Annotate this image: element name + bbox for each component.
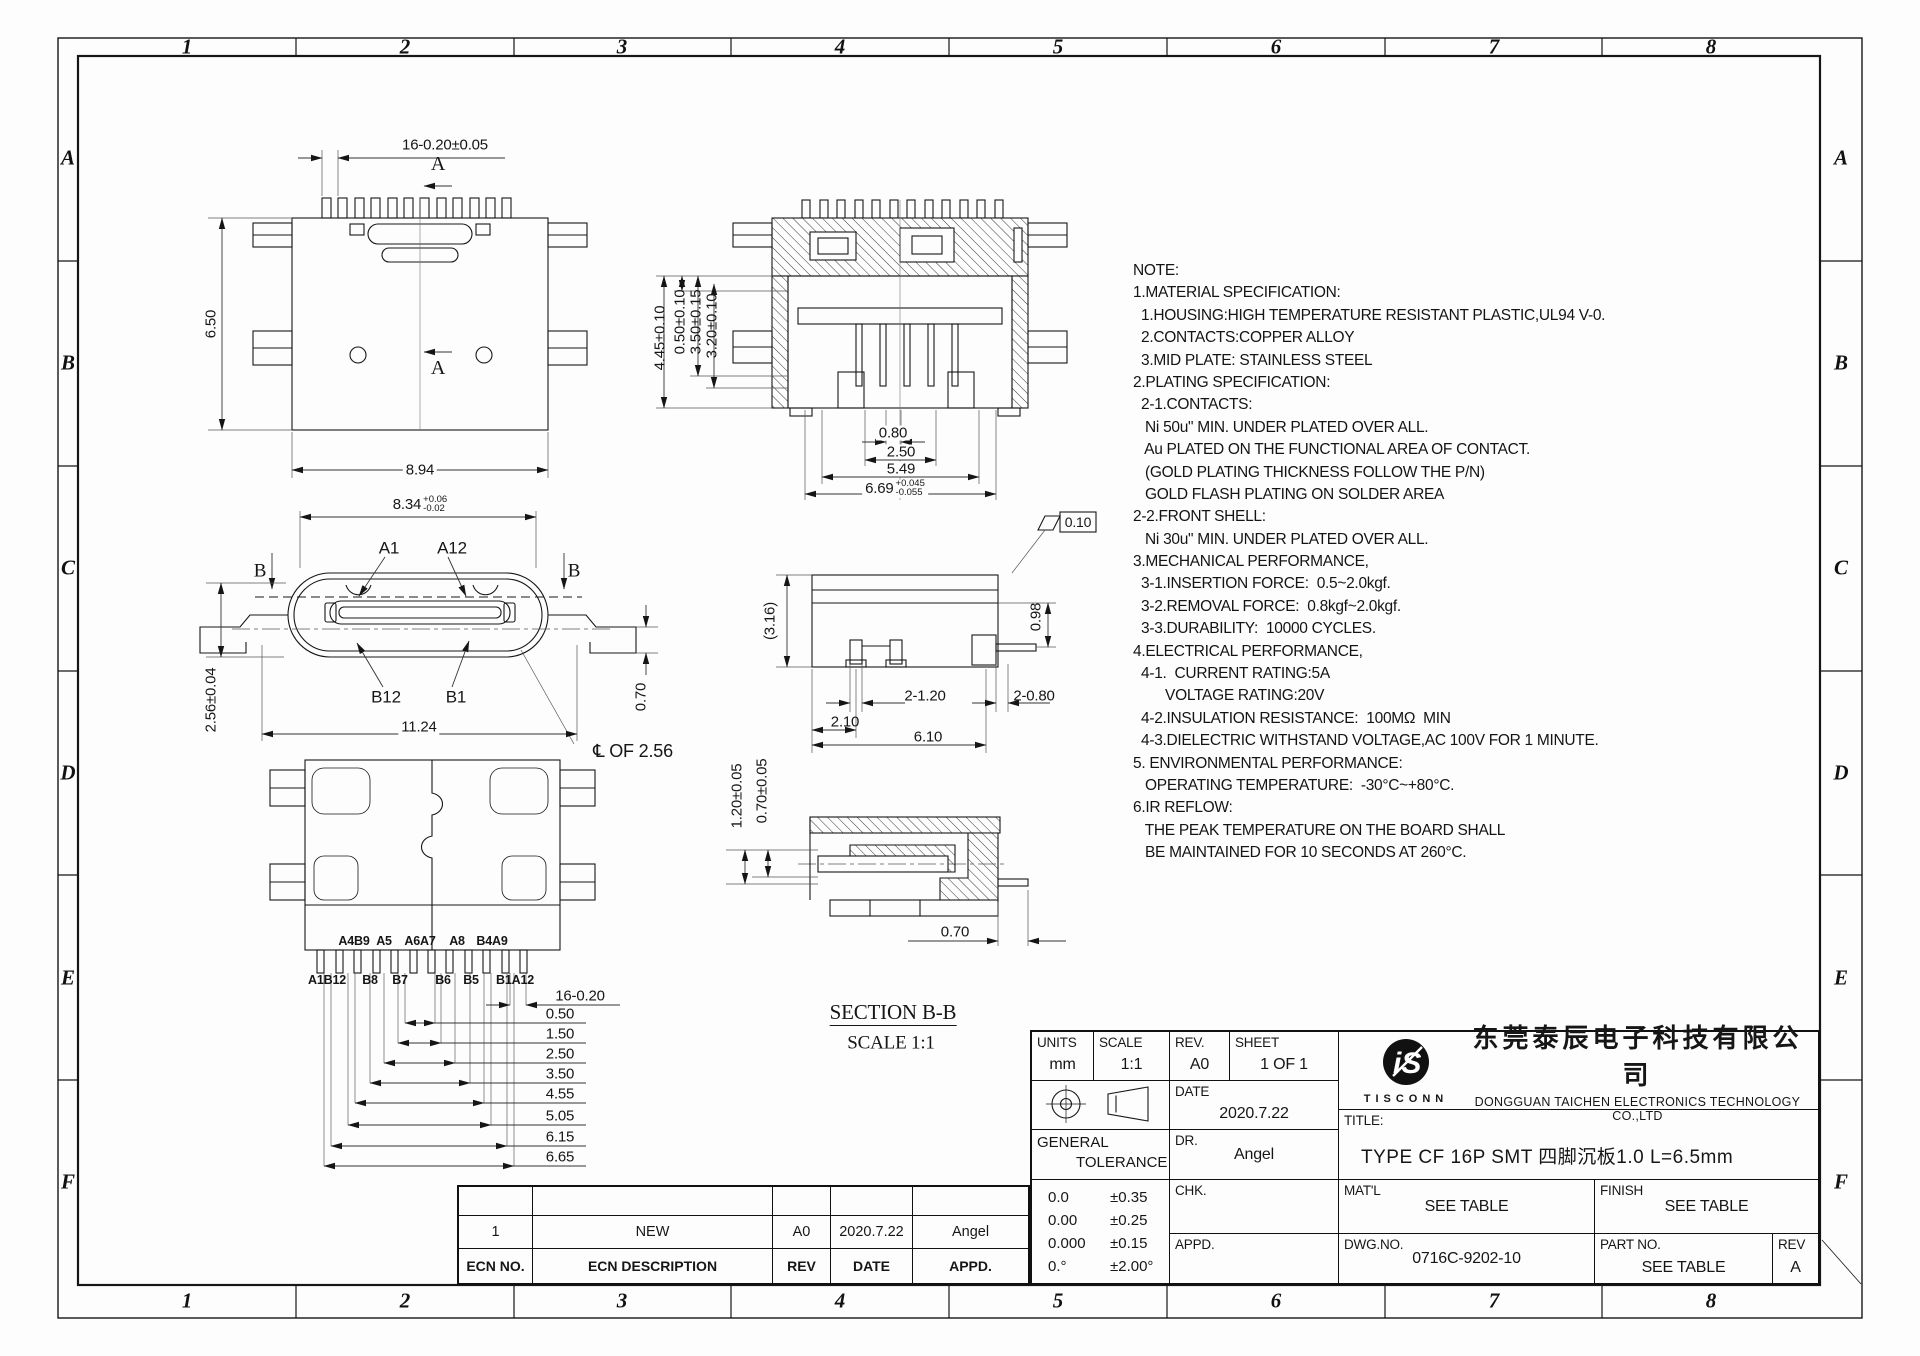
section-a-label-top: A: [431, 154, 445, 174]
units-value: mm: [1032, 1032, 1093, 1080]
dwg-no-value: 0716C-9202-10: [1339, 1234, 1594, 1283]
dim: 5.49: [884, 462, 918, 477]
title-label: TITLE:: [1344, 1113, 1383, 1128]
dim: 0.80: [876, 426, 910, 441]
ecn-header-date: DATE: [831, 1249, 913, 1283]
dim: 6.15: [546, 1130, 574, 1145]
note-line: GOLD FLASH PLATING ON SOLDER AREA: [1133, 486, 1613, 508]
zone-label: B: [61, 351, 75, 376]
dim-body-width: 8.94: [403, 463, 437, 478]
notes-block: NOTE:1.MATERIAL SPECIFICATION: 1.HOUSING…: [1133, 262, 1613, 867]
zone-label: C: [1834, 556, 1848, 581]
ecn-header-description: ECN DESCRIPTION: [533, 1249, 773, 1283]
ecn-cell: [913, 1187, 1028, 1216]
ecn-header-rev: REV: [773, 1249, 831, 1283]
zone-label: 3: [617, 35, 628, 60]
dim-body-height: 6.50: [204, 310, 219, 338]
pin-label: B1A12: [496, 974, 534, 987]
view-section-bb: [726, 817, 1066, 946]
tol-range: 0.000: [1048, 1232, 1110, 1255]
appd-value: [1170, 1234, 1338, 1283]
zone-label: 3: [617, 1289, 628, 1314]
tisconn-logo-icon: iS: [1381, 1037, 1431, 1087]
dim: 6.69+0.045-0.055: [862, 480, 928, 498]
date-value: 2020.7.22: [1170, 1081, 1338, 1129]
dim: 0.98: [1029, 603, 1044, 631]
zone-label: B: [1834, 351, 1848, 376]
note-line: 4-3.DIELECTRIC WITHSTAND VOLTAGE,AC 100V…: [1133, 732, 1613, 754]
pin-label: A6A7: [404, 935, 435, 948]
ecn-no: 1: [459, 1216, 533, 1249]
pin-label: A8: [449, 935, 465, 948]
note-line: THE PEAK TEMPERATURE ON THE BOARD SHALL: [1133, 822, 1613, 844]
part-no-value: SEE TABLE: [1595, 1234, 1772, 1283]
note-line: 6.IR REFLOW:: [1133, 799, 1613, 821]
scale-value: 1:1: [1094, 1032, 1169, 1080]
rev-value: A0: [1170, 1032, 1229, 1080]
ecn-cell: [459, 1187, 533, 1216]
general-tolerance-cell: GENERAL TOLERANCE: [1032, 1130, 1170, 1180]
dim: 6.10: [914, 730, 942, 745]
pin-label: A5: [376, 935, 392, 948]
note-line: 3-2.REMOVAL FORCE: 0.8kgf~2.0kgf.: [1133, 598, 1613, 620]
ecn-description: NEW: [533, 1216, 773, 1249]
section-b-label-right: B: [568, 562, 580, 581]
matl-value: SEE TABLE: [1339, 1180, 1594, 1233]
zone-label: A: [1834, 146, 1848, 171]
view-mating-face: [200, 511, 658, 744]
zone-label: 1: [182, 35, 193, 60]
zone-label: 7: [1489, 35, 1500, 60]
zone-label: 2: [400, 1289, 411, 1314]
flatness-tolerance: 0.10: [1065, 515, 1091, 529]
tolerance-row: 0.°±2.00°: [1032, 1255, 1169, 1278]
pin-label: A4B9: [338, 935, 369, 948]
dim: (3.16): [763, 602, 778, 640]
drawing-sheet: 16-0.20±0.05AA6.508.944.45±0.100.50±0.10…: [0, 0, 1920, 1356]
dim: 2-0.80: [1013, 689, 1054, 704]
tolerance-label: TOLERANCE: [1076, 1154, 1167, 1171]
tolerance-row: 0.0±0.35: [1032, 1186, 1169, 1209]
note-line: Ni 50u" MIN. UNDER PLATED OVER ALL.: [1133, 419, 1613, 441]
zone-label: 5: [1053, 35, 1064, 60]
zone-label: 6: [1271, 35, 1282, 60]
pin-label: B7: [392, 974, 408, 987]
title-cell: TITLE: TYPE CF 16P SMT 四脚沉板1.0 L=6.5mm: [1339, 1110, 1818, 1180]
company-cell: iS TISCONN 东莞泰辰电子科技有限公司 DONGGUAN TAICHEN…: [1339, 1032, 1818, 1110]
ecn-table: 1 NEW A0 2020.7.22 Angel ECN NO. ECN DES…: [457, 1185, 1030, 1285]
note-line: NOTE:: [1133, 262, 1613, 284]
zone-label: 2: [400, 35, 411, 60]
note-line: 2.CONTACTS:COPPER ALLOY: [1133, 329, 1613, 351]
projection-cell: [1032, 1081, 1170, 1130]
dr-value: Angel: [1170, 1130, 1338, 1179]
note-line: (GOLD PLATING THICKNESS FOLLOW THE P/N): [1133, 464, 1613, 486]
zone-label: F: [1834, 1170, 1848, 1195]
dim: 4.55: [546, 1087, 574, 1102]
dim-shell-height: 4.45±0.10: [653, 306, 668, 371]
dim: 5.05: [546, 1109, 574, 1124]
ecn-cell: [533, 1187, 773, 1216]
part-no-cell: PART NO. SEE TABLE: [1595, 1234, 1773, 1283]
pin-callout-a1: A1: [379, 540, 399, 557]
rev2-cell: REV A: [1773, 1234, 1818, 1283]
tol-value: ±0.25: [1110, 1209, 1147, 1232]
rev2-value: A: [1773, 1234, 1818, 1283]
zone-label: 5: [1053, 1289, 1064, 1314]
chk-cell: CHK.: [1170, 1180, 1339, 1234]
zone-label: C: [61, 556, 75, 581]
zone-label: 4: [835, 1289, 846, 1314]
view-top-plan: [208, 150, 587, 478]
zone-label: 6: [1271, 1289, 1282, 1314]
finish-cell: FINISH SEE TABLE: [1595, 1180, 1818, 1234]
pin-label: B4A9: [476, 935, 507, 948]
dim-tongue-width: 8.34+0.06-0.02: [390, 496, 450, 514]
note-line: Au PLATED ON THE FUNCTIONAL AREA OF CONT…: [1133, 441, 1613, 463]
section-scale: SCALE 1:1: [847, 1034, 934, 1053]
dim: 3.50: [546, 1067, 574, 1082]
dim: 2.50: [884, 445, 918, 460]
tol-value: ±0.15: [1110, 1232, 1147, 1255]
ecn-cell: [831, 1187, 913, 1216]
zone-label: D: [60, 761, 75, 786]
title-block: UNITS mm SCALE 1:1 REV. A0 SHEET 1 OF 1 …: [1030, 1030, 1820, 1285]
dim: 0.70: [941, 925, 969, 940]
note-line: 4.ELECTRICAL PERFORMANCE,: [1133, 643, 1613, 665]
tolerance-row: 0.00±0.25: [1032, 1209, 1169, 1232]
zone-label: E: [61, 966, 75, 991]
note-line: Ni 30u" MIN. UNDER PLATED OVER ALL.: [1133, 531, 1613, 553]
dr-cell: DR. Angel: [1170, 1130, 1339, 1180]
zone-label: A: [61, 146, 75, 171]
dim: 11.24: [398, 720, 439, 735]
ecn-appd: Angel: [913, 1216, 1028, 1249]
dim: 1.20±0.05: [730, 764, 745, 829]
zone-label: 7: [1489, 1289, 1500, 1314]
section-a-label-bottom: A: [431, 358, 445, 378]
pin-label: B5: [463, 974, 479, 987]
dim: 3.50±0.15: [689, 290, 704, 355]
sheet-cell: SHEET 1 OF 1: [1230, 1032, 1339, 1081]
dwg-no-cell: DWG.NO. 0716C-9202-10: [1339, 1234, 1595, 1283]
note-line: 5. ENVIRONMENTAL PERFORMANCE:: [1133, 755, 1613, 777]
ecn-cell: [773, 1187, 831, 1216]
dim: 0.70: [634, 683, 649, 711]
tol-range: 0.00: [1048, 1209, 1110, 1232]
ecn-header-appd: APPD.: [913, 1249, 1028, 1283]
dim: 2.10: [831, 715, 859, 730]
tolerance-table: 0.0±0.35 0.00±0.25 0.000±0.15 0.°±2.00°: [1032, 1180, 1170, 1283]
logo-text: TISCONN: [1347, 1093, 1465, 1105]
dim: 2-1.20: [904, 689, 945, 704]
pin-callout-a12: A12: [437, 540, 467, 557]
tol-range: 0.°: [1048, 1255, 1110, 1278]
view-bottom: [270, 760, 620, 1166]
pin-label: A1B12: [308, 974, 346, 987]
pin-callout-b1: B1: [446, 689, 466, 706]
section-title: SECTION B-B: [830, 1002, 957, 1026]
view-side: [776, 512, 1096, 753]
tol-value: ±0.35: [1110, 1186, 1147, 1209]
zone-label: 4: [835, 35, 846, 60]
finish-value: SEE TABLE: [1595, 1180, 1818, 1233]
appd-cell: APPD.: [1170, 1234, 1339, 1283]
section-b-label-left: B: [254, 562, 266, 581]
ecn-date: 2020.7.22: [831, 1216, 913, 1249]
zone-label: 8: [1706, 35, 1717, 60]
company-name-cn: 东莞泰辰电子科技有限公司: [1465, 1018, 1810, 1092]
drawing-title: TYPE CF 16P SMT 四脚沉板1.0 L=6.5mm: [1361, 1142, 1733, 1169]
third-angle-projection-icon: [1032, 1081, 1166, 1127]
dim: 0.50: [546, 1007, 574, 1022]
dim: 0.70±0.05: [755, 759, 770, 824]
tol-range: 0.0: [1048, 1186, 1110, 1209]
ecn-header-no: ECN NO.: [459, 1249, 533, 1283]
pin-callout-b12: B12: [371, 689, 401, 706]
pin-label: B6: [435, 974, 451, 987]
note-line: 2-1.CONTACTS:: [1133, 396, 1613, 418]
note-line: 3-1.INSERTION FORCE: 0.5~2.0kgf.: [1133, 575, 1613, 597]
tolerance-row: 0.000±0.15: [1032, 1232, 1169, 1255]
centerline-note: ℄ OF 2.56: [593, 742, 673, 760]
pin-label: B8: [362, 974, 378, 987]
dim-tooth-pitch: 16-0.20±0.05: [402, 138, 488, 153]
zone-label: E: [1834, 966, 1848, 991]
sheet-value: 1 OF 1: [1230, 1032, 1338, 1080]
note-line: 2.PLATING SPECIFICATION:: [1133, 374, 1613, 396]
dim: 2.50: [546, 1047, 574, 1062]
zone-label: 8: [1706, 1289, 1717, 1314]
note-line: 3.MID PLATE: STAINLESS STEEL: [1133, 352, 1613, 374]
dim: 16-0.20: [555, 989, 604, 1004]
note-line: OPERATING TEMPERATURE: -30°C~+80°C.: [1133, 777, 1613, 799]
date-cell: DATE 2020.7.22: [1170, 1081, 1339, 1130]
ecn-rev: A0: [773, 1216, 831, 1249]
general-tolerance-label: GENERAL: [1037, 1134, 1109, 1151]
dim: 1.50: [546, 1027, 574, 1042]
scale-cell: SCALE 1:1: [1094, 1032, 1170, 1081]
zone-label: F: [61, 1170, 75, 1195]
note-line: 3-3.DURABILITY: 10000 CYCLES.: [1133, 620, 1613, 642]
tol-value: ±2.00°: [1110, 1255, 1153, 1278]
matl-cell: MAT'L SEE TABLE: [1339, 1180, 1595, 1234]
note-line: BE MAINTAINED FOR 10 SECONDS AT 260°C.: [1133, 844, 1613, 866]
dim: 6.65: [546, 1150, 574, 1165]
note-line: 2-2.FRONT SHELL:: [1133, 508, 1613, 530]
rev-cell: REV. A0: [1170, 1032, 1230, 1081]
units-cell: UNITS mm: [1032, 1032, 1094, 1081]
dim: 0.50±0.10: [673, 290, 688, 355]
dim: 2.56±0.04: [204, 668, 219, 733]
note-line: 4-2.INSULATION RESISTANCE: 100MΩ MIN: [1133, 710, 1613, 732]
chk-value: [1170, 1180, 1338, 1233]
zone-label: 1: [182, 1289, 193, 1314]
note-line: 4-1. CURRENT RATING:5A: [1133, 665, 1613, 687]
note-line: 1.MATERIAL SPECIFICATION:: [1133, 284, 1613, 306]
dim: 3.20±0.10: [705, 294, 720, 359]
note-line: 3.MECHANICAL PERFORMANCE,: [1133, 553, 1613, 575]
zone-label: D: [1833, 761, 1848, 786]
note-line: VOLTAGE RATING:20V: [1133, 687, 1613, 709]
note-line: 1.HOUSING:HIGH TEMPERATURE RESISTANT PLA…: [1133, 307, 1613, 329]
